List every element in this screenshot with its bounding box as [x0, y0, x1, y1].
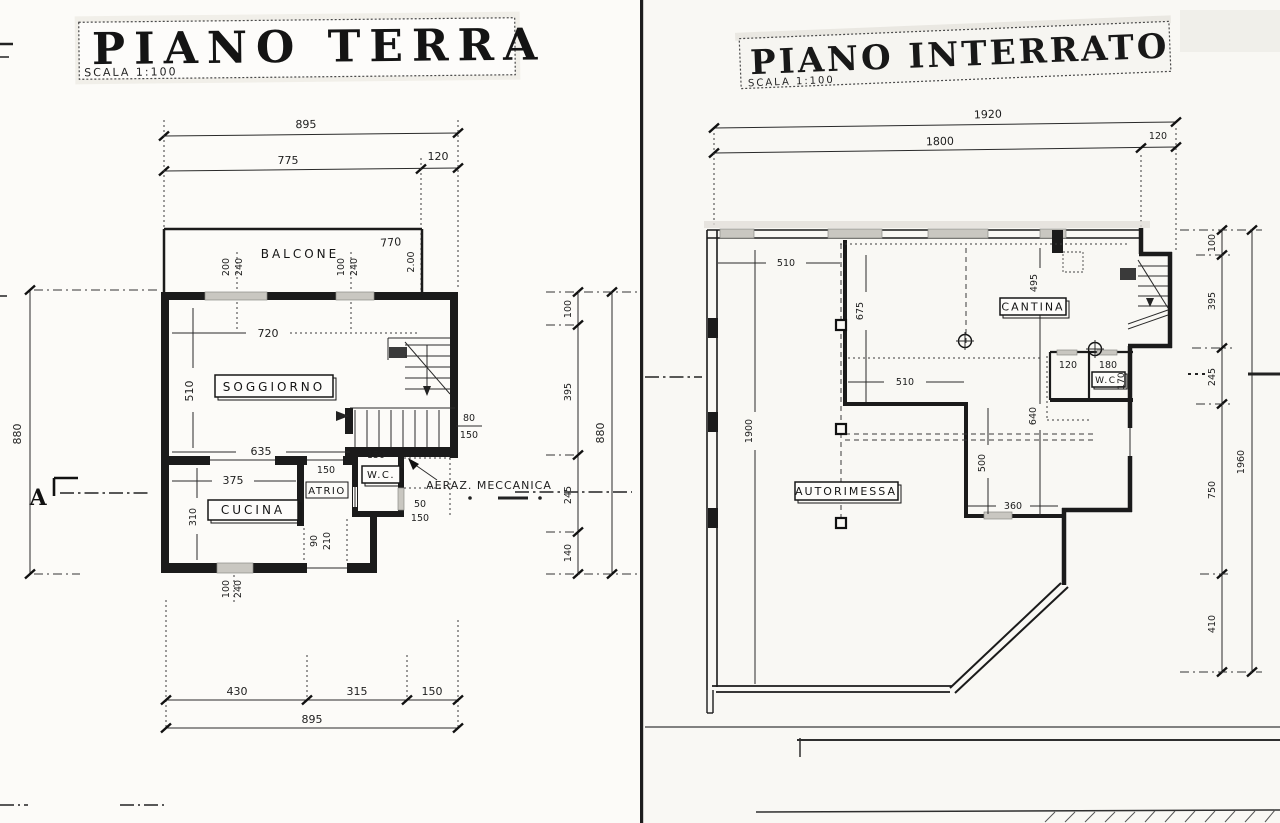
dim-wc-depth: 170	[1117, 372, 1127, 389]
dim-door-height: 210	[322, 532, 333, 550]
window-top-left	[205, 292, 267, 300]
pilaster-3	[708, 508, 718, 528]
dim-bottom-seg2: 315	[347, 685, 368, 698]
cantina-label: CANTINA	[1001, 301, 1064, 314]
dim-right-total: 1960	[1236, 450, 1247, 474]
dim-wc-seg2: 180	[1099, 360, 1117, 371]
column-3	[836, 518, 846, 528]
window-bottom	[217, 563, 253, 573]
opening-top-3	[928, 229, 988, 238]
dim-cantina-left-height: 675	[855, 302, 866, 320]
dim-cucina-width: 375	[223, 474, 244, 487]
dim-soggiorno-top: 720	[258, 327, 279, 340]
sheet-divider	[640, 0, 643, 823]
column-1	[836, 320, 846, 330]
dim-right-total: 880	[594, 423, 607, 444]
dim-wc-width: 150	[367, 450, 385, 461]
scan-smudge	[1180, 10, 1280, 52]
dim-window-mid-w: 100	[336, 258, 347, 276]
dim-left-total: 880	[11, 424, 24, 445]
atrio-label: ATRIO	[308, 486, 345, 497]
dim-bottom-total: 895	[302, 713, 323, 726]
dim-right-seg3: 245	[563, 486, 574, 504]
dim-right-seg2: 395	[563, 383, 574, 401]
dim-right-seg4: 750	[1207, 481, 1218, 499]
scanned-floor-plan-sheet: PIANO TERRA SCALA 1:100 895 775 120 770 …	[0, 0, 1280, 823]
vent-window	[398, 488, 404, 510]
dim-window-bottom-h: 240	[233, 580, 244, 598]
dim-top-main: 775	[278, 154, 299, 167]
balcone-label: BALCONE	[261, 247, 340, 261]
dim-atrio-width: 150	[317, 465, 335, 476]
dim-stair-width: 80	[463, 413, 475, 424]
dim-upper-left-width: 510	[777, 258, 795, 269]
dim-soggiorno-bottom: 635	[251, 445, 272, 458]
dim-right-seg1: 100	[563, 300, 574, 318]
floor-plan-drawing: PIANO TERRA SCALA 1:100 895 775 120 770 …	[0, 0, 1280, 823]
vent-note-label: AERAZ. MECCANICA	[426, 479, 552, 492]
dim-right-seg1: 100	[1207, 234, 1218, 252]
dim-door-width: 90	[309, 535, 320, 547]
dim-soggiorno-height: 510	[183, 381, 196, 402]
dim-bottom-seg1: 430	[227, 685, 248, 698]
left-plan-scale: SCALA 1:100	[84, 65, 177, 79]
section-marker-a: A	[28, 485, 47, 511]
flue-shaft	[389, 347, 407, 358]
dim-balcone-depth: 2.00	[406, 251, 417, 272]
cucina-label: CUCINA	[221, 503, 285, 517]
autorimessa-label: AUTORIMESSA	[795, 485, 897, 498]
dim-cantina-height: 495	[1029, 274, 1040, 292]
pilaster-1	[708, 318, 718, 338]
dim-bottom-seg3: 150	[422, 685, 443, 698]
dim-cantina-width: 510	[896, 377, 914, 388]
dim-balcone-width: 770	[380, 235, 402, 249]
dim-vent-total: 150	[411, 513, 429, 524]
dim-court-width: 360	[1004, 501, 1022, 512]
dim-right-seg4: 140	[563, 544, 574, 562]
dim-cucina-height: 310	[188, 508, 199, 526]
opening-top-2	[828, 229, 882, 238]
soggiorno-label: SOGGIORNO	[223, 380, 325, 394]
opening-top-1	[720, 229, 754, 238]
dim-top-total: 1920	[974, 108, 1002, 122]
dim-window-left-w: 200	[221, 258, 232, 276]
window-top-mid	[336, 292, 374, 300]
right-sheet-paper	[643, 0, 1280, 823]
dim-top-main: 1800	[926, 135, 954, 149]
dim-stair-width-total: 150	[460, 430, 478, 441]
dim-right-seg3: 245	[1207, 368, 1218, 386]
dim-window-left-h: 240	[234, 258, 245, 276]
left-title-stamp: PIANO TERRA SCALA 1:100	[75, 11, 547, 84]
dim-top-total: 895	[295, 118, 316, 131]
dim-mid-height: 640	[1028, 407, 1039, 425]
dim-top-stair: 120	[1149, 131, 1167, 142]
column-2	[836, 424, 846, 434]
top-wall-pillar	[1052, 230, 1063, 253]
dim-right-seg2: 395	[1207, 292, 1218, 310]
pilaster-2	[708, 412, 718, 432]
dim-left-height: 1900	[744, 419, 755, 443]
dim-vent-width: 50	[414, 499, 426, 510]
flue-shaft	[1120, 268, 1136, 280]
wc-opening-1	[1057, 350, 1077, 355]
dim-window-bottom-w: 100	[221, 580, 232, 598]
dim-top-stair: 120	[428, 150, 449, 163]
dim-wc-seg1: 120	[1059, 360, 1077, 371]
wc-label: W.C.	[367, 470, 395, 481]
dim-right-seg5: 410	[1207, 615, 1218, 633]
dim-court-height: 500	[977, 454, 988, 472]
